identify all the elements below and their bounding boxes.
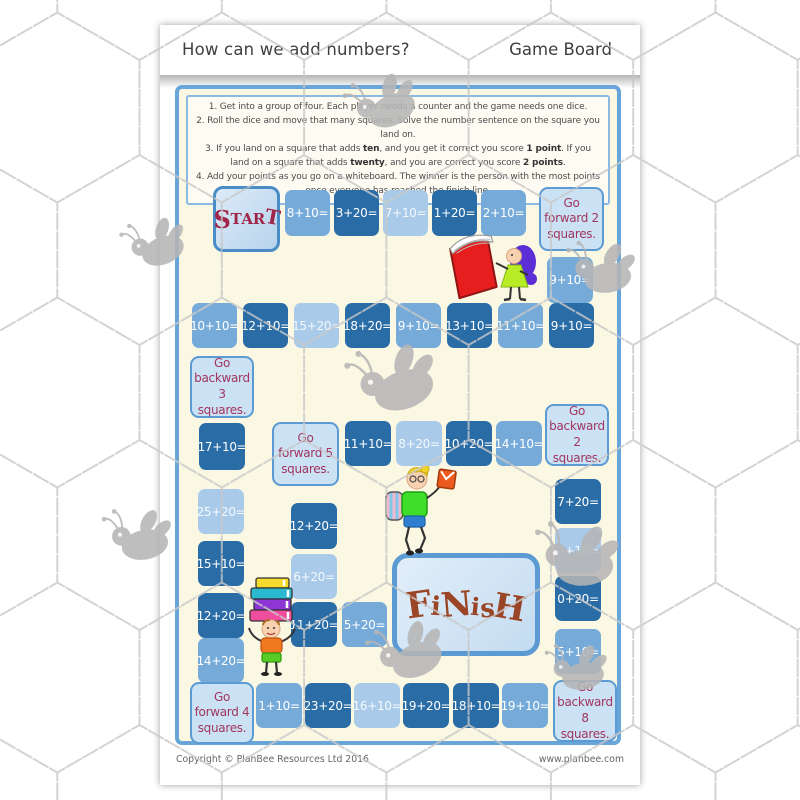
footer-copyright: Copyright © PlanBee Resources Ltd 2016 bbox=[176, 754, 369, 765]
board-square: 11+10= bbox=[498, 303, 543, 348]
board-square: 3+10= bbox=[555, 528, 601, 573]
board-square: 11+10= bbox=[345, 421, 391, 466]
board-square: 5+10= bbox=[555, 629, 601, 674]
board-square: 15+20= bbox=[294, 303, 339, 348]
start-square: START bbox=[213, 186, 280, 252]
board-square: 13+10= bbox=[447, 303, 492, 348]
board-square: 25+20= bbox=[198, 489, 244, 534]
board-square: 7+10= bbox=[383, 190, 428, 236]
girl-with-red-book-illustration bbox=[438, 233, 540, 303]
action-square: Go forward 2 squares. bbox=[539, 187, 604, 251]
board-square: 23+20= bbox=[305, 683, 351, 728]
board-square: 10+20= bbox=[446, 421, 492, 466]
board-square: 9+10= bbox=[549, 303, 594, 348]
board-square: 16+10= bbox=[354, 683, 400, 728]
action-square: Go backward 2 squares. bbox=[545, 404, 609, 466]
board-square: 5+20= bbox=[342, 602, 387, 647]
board-square: 14+10= bbox=[496, 421, 542, 466]
boy-reading-with-backpack-illustration bbox=[380, 466, 464, 558]
board-square: 12+10= bbox=[243, 303, 288, 348]
board-square: 8+10= bbox=[285, 190, 330, 236]
worksheet-preview: How can we add numbers? Game Board 1. Ge… bbox=[0, 0, 800, 800]
board-square: 9+10= bbox=[547, 257, 593, 303]
action-square: Go backward 3 squares. bbox=[190, 356, 254, 418]
doc-type-label: Game Board bbox=[509, 40, 612, 59]
action-square: Go forward 5 squares. bbox=[272, 422, 339, 486]
instruction-line: 2. Roll the dice and move that many squa… bbox=[196, 115, 600, 143]
footer-website: www.planbee.com bbox=[539, 754, 624, 765]
finish-square: FiNisH bbox=[392, 553, 540, 656]
board-square: 18+20= bbox=[345, 303, 390, 348]
board-square: 8+20= bbox=[396, 421, 442, 466]
boy-balancing-book-stack-illustration bbox=[236, 576, 316, 676]
board-square: 9+10= bbox=[396, 303, 441, 348]
board-square: 1+10= bbox=[256, 683, 302, 728]
action-square: Go forward 4 squares. bbox=[190, 682, 254, 744]
board-square: 0+20= bbox=[555, 576, 601, 621]
board-square: 10+10= bbox=[192, 303, 237, 348]
board-square: 19+10= bbox=[502, 683, 548, 728]
instruction-line: 3. If you land on a square that adds ten… bbox=[196, 143, 600, 171]
action-square: Go backward 8 squares. bbox=[553, 680, 617, 742]
board-square: 19+20= bbox=[403, 683, 449, 728]
board-square: 3+20= bbox=[334, 190, 379, 236]
board-square: 7+20= bbox=[555, 479, 601, 524]
page-footer: Copyright © PlanBee Resources Ltd 2016 w… bbox=[176, 754, 624, 765]
board-square: 2+10= bbox=[481, 190, 526, 236]
board-square: 1+20= bbox=[432, 190, 477, 236]
instruction-line: 1. Get into a group of four. Each player… bbox=[196, 101, 600, 115]
page-header: How can we add numbers? Game Board bbox=[160, 25, 640, 75]
worksheet-page: How can we add numbers? Game Board 1. Ge… bbox=[160, 25, 640, 785]
page-title: How can we add numbers? bbox=[182, 40, 410, 59]
board-square: 12+20= bbox=[291, 503, 337, 549]
board-square: 17+10= bbox=[199, 423, 245, 470]
board-square: 18+10= bbox=[453, 683, 499, 728]
